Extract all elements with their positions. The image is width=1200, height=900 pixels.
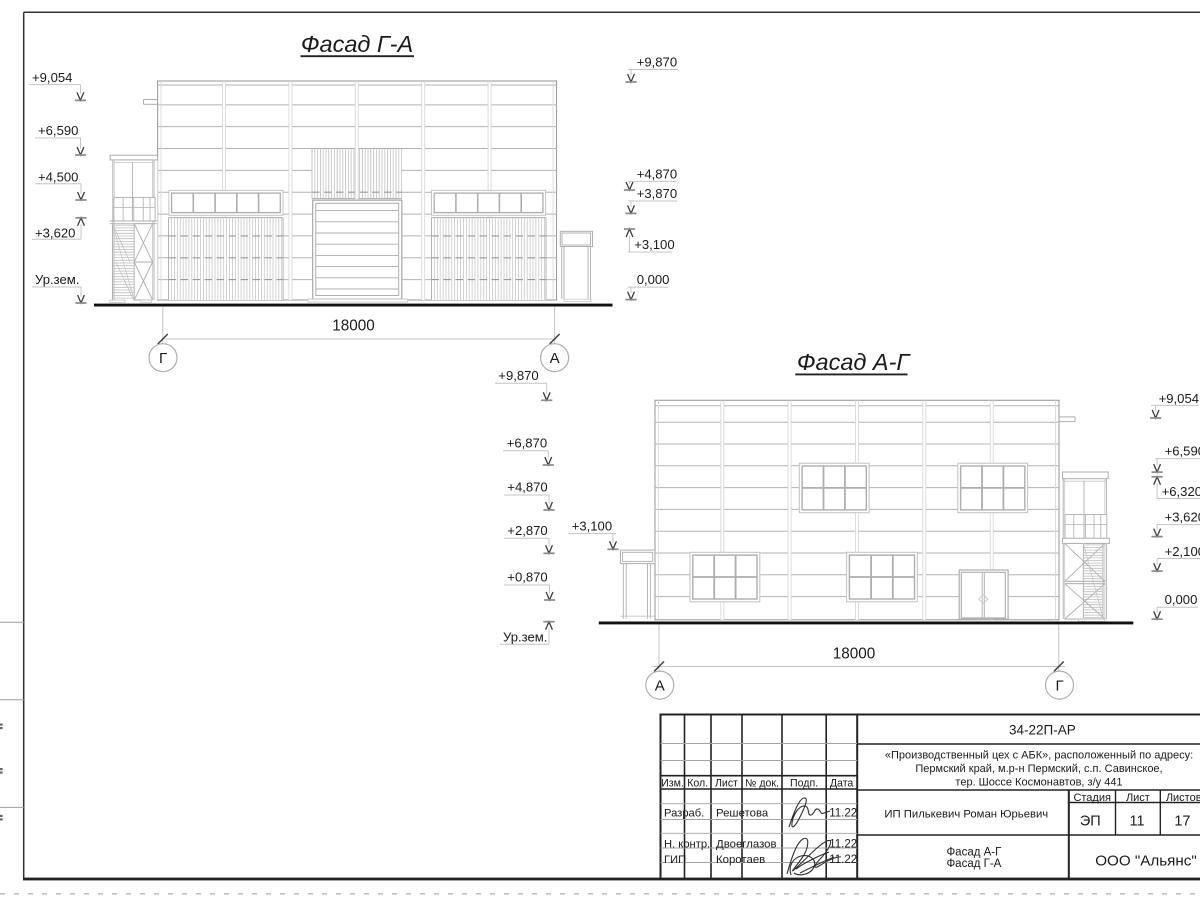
svg-text:Н. контр.: Н. контр.	[664, 838, 710, 850]
svg-text:+4,870: +4,870	[507, 480, 547, 495]
svg-text:тер. Шоссе Космонавтов, з/у 44: тер. Шоссе Космонавтов, з/у 441	[955, 776, 1122, 788]
svg-text:+3,620: +3,620	[1165, 510, 1200, 525]
svg-text:+4,500: +4,500	[38, 169, 78, 184]
svg-text:ООО "Альянс": ООО "Альянс"	[1095, 853, 1197, 870]
svg-text:Фасад А-Г: Фасад А-Г	[946, 847, 1002, 859]
svg-text:18000: 18000	[833, 645, 876, 662]
svg-text:А: А	[655, 678, 665, 695]
svg-text:ЭП: ЭП	[1080, 814, 1101, 830]
svg-text:№ док.: № док.	[745, 777, 779, 789]
svg-text:+3,100: +3,100	[634, 237, 674, 252]
svg-text:Листов: Листов	[1166, 792, 1200, 804]
svg-text:Г: Г	[159, 350, 167, 367]
svg-text:+3,870: +3,870	[637, 186, 677, 201]
svg-text:11: 11	[1129, 814, 1144, 830]
svg-text:ГИП: ГИП	[664, 854, 686, 866]
svg-text:+9,870: +9,870	[498, 368, 538, 383]
svg-text:11.22: 11.22	[829, 854, 857, 866]
svg-text:+2,870: +2,870	[507, 523, 547, 538]
svg-text:«Производственный цех с АБК»,: «Производственный цех с АБК», расположен…	[885, 750, 1193, 762]
svg-text:Дата: Дата	[830, 777, 854, 789]
svg-text:+2,100: +2,100	[1165, 544, 1200, 559]
svg-text:Ур.зем.: Ур.зем.	[35, 272, 79, 287]
svg-text:Стадия: Стадия	[1073, 792, 1111, 804]
svg-text:+9,870: +9,870	[637, 54, 677, 69]
svg-text:Разраб.: Разраб.	[664, 807, 704, 819]
svg-text:Фасад Г-А: Фасад Г-А	[301, 31, 413, 57]
svg-text:11.22: 11.22	[829, 838, 857, 850]
svg-text:Изм.: Изм.	[661, 777, 684, 789]
svg-text:+9,054: +9,054	[1159, 391, 1199, 406]
svg-text:34-22П-АР: 34-22П-АР	[1009, 722, 1076, 737]
svg-text:+6,870: +6,870	[507, 435, 547, 450]
svg-text:ИП Пилькевич Роман Юрьевич: ИП Пилькевич Роман Юрьевич	[884, 808, 1048, 820]
svg-text:Г: Г	[1055, 678, 1063, 695]
svg-text:А: А	[550, 350, 560, 367]
svg-text:+3,100: +3,100	[572, 519, 612, 534]
svg-text:Фасад А-Г: Фасад А-Г	[797, 349, 912, 375]
svg-text:Фасад Г-А: Фасад Г-А	[946, 858, 1001, 870]
svg-text:Двоеглазов: Двоеглазов	[716, 838, 777, 850]
svg-text:Пермский край, м.р-н Пермский,: Пермский край, м.р-н Пермский, с.п. Сави…	[915, 763, 1162, 775]
svg-text:Коротаев: Коротаев	[716, 854, 765, 866]
svg-text:17: 17	[1174, 814, 1190, 830]
svg-text:+6,590: +6,590	[38, 123, 78, 138]
svg-text:Лист: Лист	[715, 777, 738, 789]
svg-text:+3,620: +3,620	[35, 226, 75, 241]
svg-text:+4,870: +4,870	[637, 166, 677, 181]
svg-text:Кол.: Кол.	[687, 777, 708, 789]
svg-text:+6,320: +6,320	[1162, 484, 1200, 499]
svg-text:Решетова: Решетова	[716, 807, 769, 819]
svg-text:18000: 18000	[332, 318, 375, 335]
svg-text:+9,054: +9,054	[32, 70, 72, 85]
svg-text:11.22: 11.22	[829, 807, 857, 819]
svg-text:0,000: 0,000	[637, 272, 670, 287]
svg-text:Лист: Лист	[1126, 792, 1150, 804]
svg-text:0,000: 0,000	[1165, 592, 1198, 607]
svg-text:Подп.: Подп.	[790, 777, 818, 789]
svg-text:Ур.зем.: Ур.зем.	[503, 630, 547, 645]
svg-text:+6,590: +6,590	[1165, 444, 1200, 459]
svg-text:+0,870: +0,870	[507, 570, 547, 585]
